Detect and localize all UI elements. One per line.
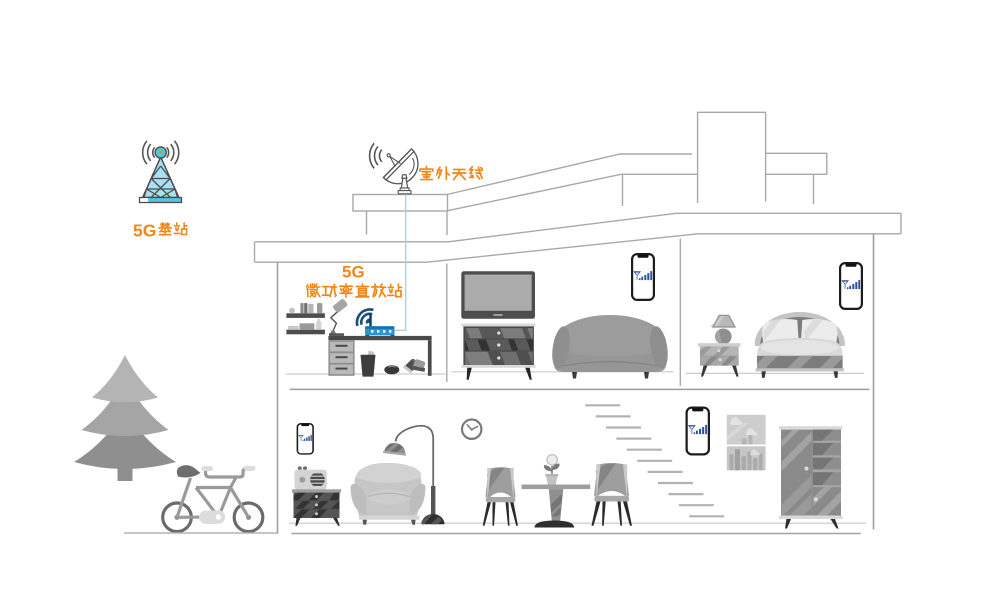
svg-text:5G: 5G <box>133 221 156 241</box>
svg-text:5G: 5G <box>342 263 365 282</box>
